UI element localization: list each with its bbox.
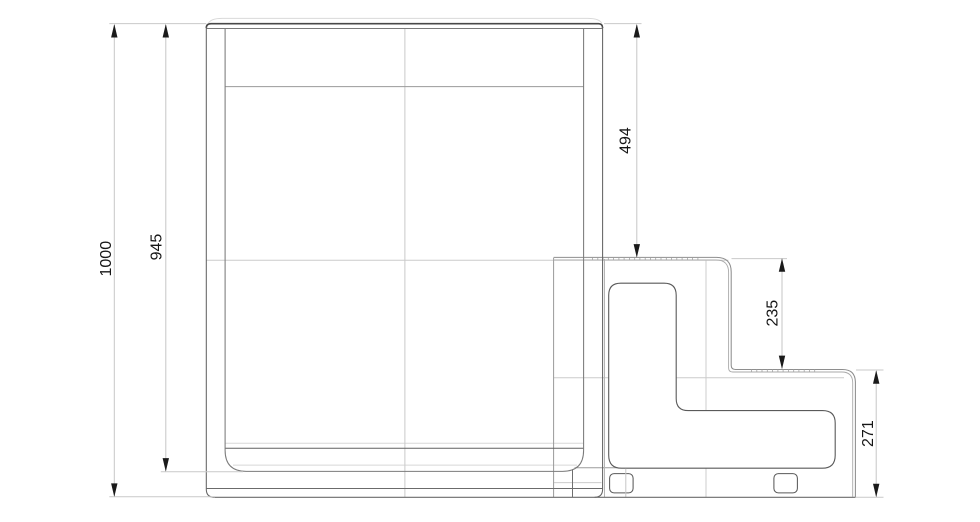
svg-text:235: 235 [765, 300, 782, 327]
svg-text:494: 494 [618, 127, 635, 154]
svg-text:945: 945 [149, 234, 166, 261]
svg-text:271: 271 [860, 420, 877, 447]
svg-text:1000: 1000 [98, 241, 115, 277]
